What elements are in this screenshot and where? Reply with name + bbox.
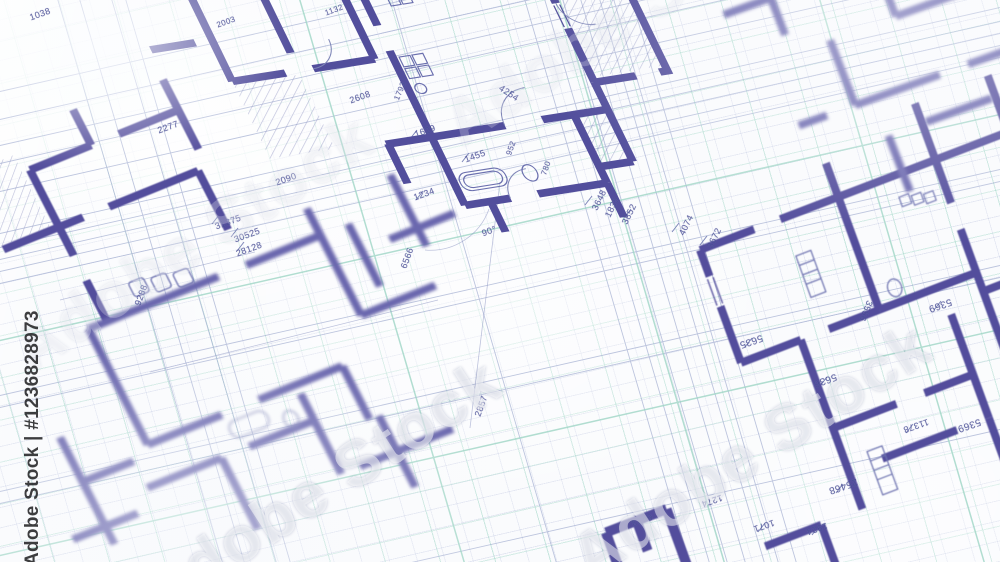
dimension-label: 3672 — [705, 226, 723, 250]
dimension-label: 952 — [504, 140, 517, 157]
adobe-stock-watermark-diagonal: Adobe Stock — [430, 0, 817, 160]
dimension-label: 1924 — [805, 521, 829, 537]
right-angle-arc — [425, 209, 489, 250]
bathtub-icon — [456, 162, 541, 192]
toilet-icon — [885, 277, 904, 299]
cabinet-icon — [867, 446, 898, 495]
dimension-label: 4074 — [677, 213, 695, 237]
dimension-label: 5369 — [927, 296, 953, 314]
dimension-label: 1038 — [28, 6, 52, 23]
adobe-stock-watermark-diagonal: Adobe Stock — [0, 99, 387, 386]
sink-icon — [413, 83, 429, 95]
dimension-label: 1071 — [752, 518, 776, 534]
dimension-label: 1132 — [324, 3, 345, 18]
dimension-label: 1234 — [412, 186, 436, 203]
dimension-label: 1629 — [413, 123, 437, 140]
toilet-icon — [519, 164, 541, 182]
dimension-label: 90° — [480, 224, 497, 238]
dimension-label: 2003 — [215, 14, 236, 29]
dimension-label: 11378 — [902, 417, 930, 435]
dimension-label: 3852 — [620, 202, 638, 226]
wall-segments — [691, 0, 1000, 229]
dimension-label: 5369 — [956, 416, 982, 434]
bath-fixtures-blurred — [226, 399, 301, 450]
toilet-icon — [280, 408, 301, 429]
blueprint-photo: 1038200311322277260817934254209016291455… — [0, 0, 1000, 562]
dimension-label: 3648 — [590, 188, 608, 212]
adobe-stock-watermark-diagonal: Adobe Stock — [128, 343, 515, 562]
dimension-label: 1835 — [603, 195, 621, 219]
cabinet-icon — [796, 250, 826, 297]
dimension-label: 3556 — [857, 299, 874, 323]
topright-floorplan-blurred — [691, 0, 1000, 229]
dimension-label: 780 — [539, 160, 552, 177]
dimension-label: 6566 — [399, 246, 416, 270]
adobe-stock-watermark-diagonal: Adobe Stock — [558, 307, 945, 562]
hatch-area — [0, 155, 50, 250]
dimension-label: 25468 — [827, 476, 859, 496]
adobe-stock-id-watermark: Adobe Stock | #1236828973 — [22, 310, 44, 562]
dimension-label: 2277 — [156, 119, 180, 136]
dimension-label: 2608 — [348, 89, 372, 106]
hatch-area — [580, 114, 628, 163]
dimension-label: 1793 — [392, 80, 408, 101]
small-fixtures — [860, 185, 962, 299]
dimension-label: 5635 — [738, 332, 764, 350]
bathtub-icon — [226, 409, 271, 440]
kitchen-stove-icon — [371, 0, 455, 94]
window-lines — [707, 277, 722, 305]
